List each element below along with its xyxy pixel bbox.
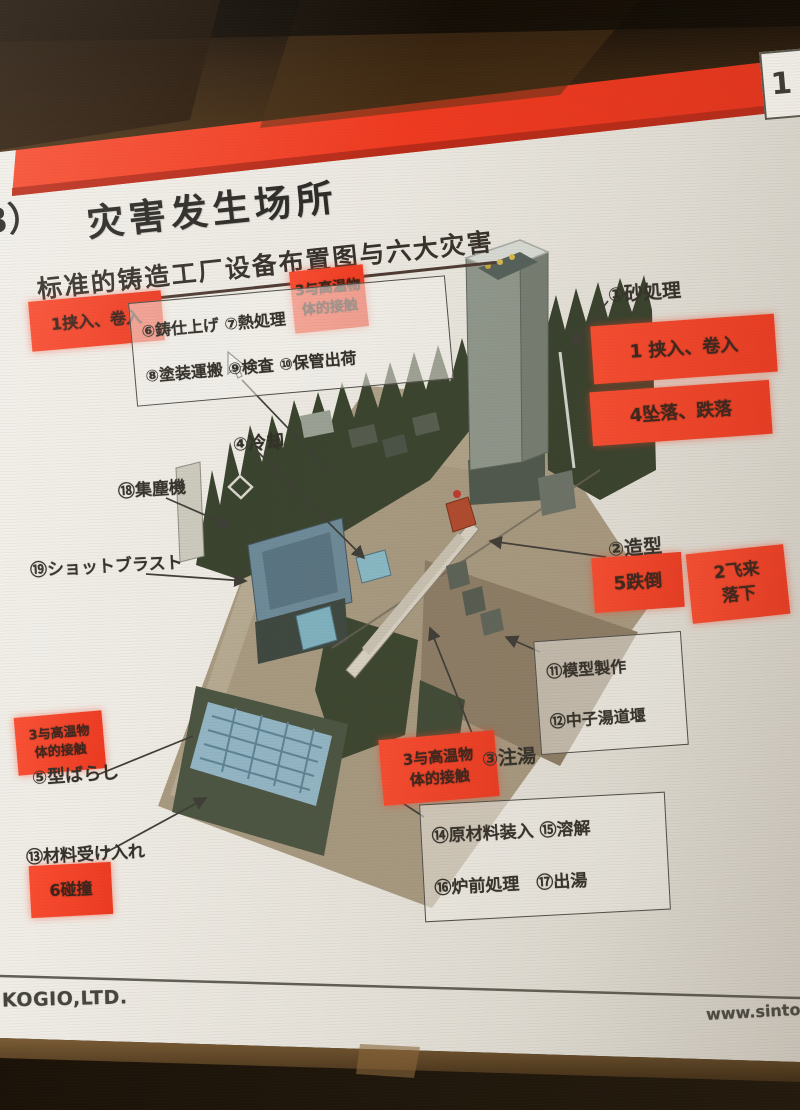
hazard-fall-right-line-0: 4坠落、跌落	[629, 397, 733, 429]
label-molding: ②造型	[607, 536, 662, 561]
hazard-hot-mid: 3与高温物体的接触	[378, 730, 499, 806]
label-cooling: ④冷却	[232, 432, 285, 455]
label-molding-line-0: ②造型	[607, 535, 662, 561]
process-melting-box-line-1: ⑯炉前処理 ⑰出湯	[434, 866, 659, 901]
label-pouring-line-0: ③注湯	[481, 745, 536, 771]
room-background-bottom	[0, 1038, 800, 1110]
process-pattern-box-line-0: ⑪模型製作	[546, 653, 673, 683]
hazard-trip-line-0: 5跌倒	[613, 568, 663, 597]
hazard-flying: 2飞来落下	[686, 544, 791, 624]
process-melting-box-line-0: ⑭原材料装入 ⑮溶解	[431, 814, 656, 849]
process-melting-box: ⑭原材料装入 ⑮溶解⑯炉前処理 ⑰出湯	[419, 792, 671, 923]
process-pattern-box-line-1: ⑫中子湯道堰	[549, 703, 676, 733]
hazard-flying-line-1: 落下	[721, 582, 757, 609]
hazard-collision-line-0: 6碰撞	[49, 878, 93, 903]
hazard-collision: 6碰撞	[29, 862, 114, 918]
process-finishing-box-line-1: ⑧塗装運搬 ⑨検査 ⑩保管出荷	[145, 340, 442, 387]
hazard-hot-mid-line-1: 体的接触	[409, 765, 471, 791]
photo-of-projected-slide: 3） 灾害发生场所 标准的铸造工厂设备布置图与六大灾害 1 KOGIO,LTD.…	[0, 0, 800, 1110]
page-number: 1	[769, 66, 793, 103]
label-pouring: ③注湯	[481, 746, 536, 771]
page-number-box: 1	[759, 48, 800, 120]
hazard-trip: 5跌倒	[591, 552, 685, 613]
process-pattern-box: ⑪模型製作⑫中子湯道堰	[533, 631, 689, 755]
slide-title-prefix: 3）	[0, 190, 44, 244]
label-cooling-line-0: ④冷却	[232, 431, 285, 456]
process-finishing-box-line-0: ⑥鋳仕上げ ⑦熱処理	[141, 295, 438, 342]
footer-company-name: KOGIO,LTD.	[2, 986, 128, 1011]
hazard-pinch-right-line-0: 1 挟入、卷入	[629, 333, 739, 366]
hazard-hot-left-line-1: 体的接触	[34, 741, 87, 764]
